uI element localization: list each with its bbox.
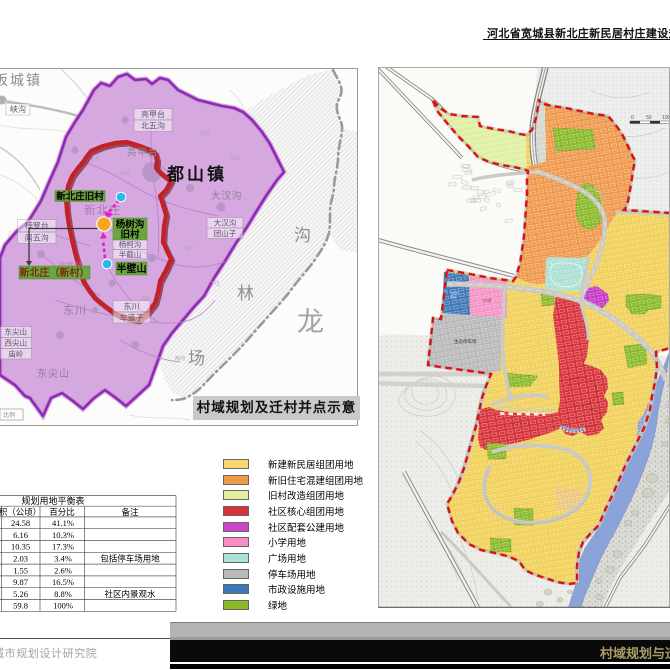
svg-text:9.87: 9.87 xyxy=(13,577,28,587)
svg-text:车道子: 车道子 xyxy=(120,312,144,322)
svg-text:100: 100 xyxy=(662,115,670,121)
svg-text:东尖山: 东尖山 xyxy=(5,327,28,337)
svg-text:16.5%: 16.5% xyxy=(52,577,74,587)
svg-text:团山子: 团山子 xyxy=(214,228,237,238)
svg-text:59.8: 59.8 xyxy=(13,601,28,611)
svg-text:新北庄: 新北庄 xyxy=(84,203,122,217)
svg-text:东川: 东川 xyxy=(124,301,140,311)
svg-text:峡沟: 峡沟 xyxy=(10,104,26,114)
svg-text:亮甲台: 亮甲台 xyxy=(127,147,159,159)
svg-text:积（公顷）: 积（公顷） xyxy=(0,507,41,517)
svg-text:新北庄（新村）: 新北庄（新村） xyxy=(20,266,90,279)
svg-text:南沟: 南沟 xyxy=(175,355,185,362)
svg-text:场: 场 xyxy=(188,349,205,368)
svg-text:杨柯沟: 杨柯沟 xyxy=(119,239,142,249)
svg-text:亮甲台: 亮甲台 xyxy=(141,109,165,119)
svg-text:沟门: 沟门 xyxy=(185,245,195,252)
svg-text:2.6%: 2.6% xyxy=(54,565,72,575)
svg-text:比例: 比例 xyxy=(3,411,15,419)
svg-text:运站: 运站 xyxy=(450,294,456,299)
svg-text:林: 林 xyxy=(237,284,254,303)
svg-text:生态停车场: 生态停车场 xyxy=(454,338,477,345)
svg-text:东沟: 东沟 xyxy=(230,155,240,162)
svg-text:6.16: 6.16 xyxy=(13,530,28,540)
svg-text:41.1%: 41.1% xyxy=(52,518,74,528)
svg-text:2.03: 2.03 xyxy=(13,554,28,564)
svg-text:社区内景观水: 社区内景观水 xyxy=(104,589,156,599)
svg-text:西尖山: 西尖山 xyxy=(5,338,28,348)
svg-text:旧村: 旧村 xyxy=(120,229,140,241)
svg-text:3.4%: 3.4% xyxy=(54,554,72,564)
svg-text:8.8%: 8.8% xyxy=(54,589,72,599)
svg-text:10.3%: 10.3% xyxy=(52,530,74,540)
svg-text:上台: 上台 xyxy=(90,155,100,162)
svg-text:17.3%: 17.3% xyxy=(52,542,74,552)
svg-text:百分比: 百分比 xyxy=(49,507,75,517)
svg-text:大汉沟: 大汉沟 xyxy=(214,217,237,227)
svg-text:50: 50 xyxy=(646,115,652,121)
svg-text:10.35: 10.35 xyxy=(11,542,30,552)
svg-text:1.55: 1.55 xyxy=(13,565,28,575)
svg-text:半截山: 半截山 xyxy=(119,249,142,259)
svg-text:规划用地平衡表: 规划用地平衡表 xyxy=(21,495,84,506)
svg-text:龙: 龙 xyxy=(297,307,324,337)
svg-text:南台: 南台 xyxy=(200,130,210,137)
svg-text:0: 0 xyxy=(631,115,634,121)
svg-text:大汉沟: 大汉沟 xyxy=(211,190,243,202)
svg-text:庙岭: 庙岭 xyxy=(8,348,23,358)
svg-text:新北庄旧村: 新北庄旧村 xyxy=(56,190,104,202)
svg-text:备注: 备注 xyxy=(121,507,139,517)
svg-text:下庄: 下庄 xyxy=(210,280,220,287)
svg-text:5.26: 5.26 xyxy=(13,589,28,599)
svg-text:包括停车场用地: 包括停车场用地 xyxy=(100,554,160,564)
svg-text:板城镇: 板城镇 xyxy=(0,72,42,88)
svg-text:都山镇: 都山镇 xyxy=(166,164,227,184)
svg-text:北五沟: 北五沟 xyxy=(141,121,165,131)
svg-text:半壁山: 半壁山 xyxy=(117,262,147,275)
svg-text:沟: 沟 xyxy=(294,226,311,245)
svg-text:100%: 100% xyxy=(53,601,73,611)
svg-text:小学: 小学 xyxy=(483,297,491,304)
svg-text:24.58: 24.58 xyxy=(11,518,30,528)
svg-text:东川: 东川 xyxy=(63,304,87,317)
svg-text:西台: 西台 xyxy=(120,170,130,177)
svg-text:东尖山: 东尖山 xyxy=(37,367,70,380)
